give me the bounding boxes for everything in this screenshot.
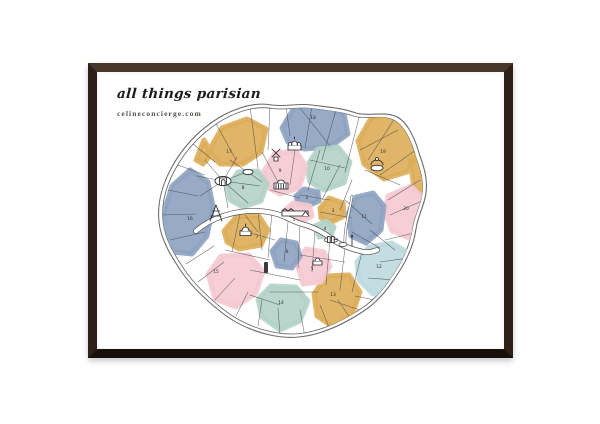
arrondissement-number: 19 [380,149,386,155]
arrondissement-number: 6 [286,249,289,255]
arrondissement-number: 9 [279,168,282,174]
arr-8-patch [227,171,267,207]
arc-de-triomphe-icon [215,176,231,185]
arrondissement-number: 8 [242,185,245,191]
picture-frame: all things parisian celineconcierge.com [88,63,513,358]
ile-saint-louis [339,243,347,247]
arrondissement-number: 17 [226,149,232,155]
montparnasse-tower-icon [264,262,268,273]
arrondissement-number: 10 [324,166,330,172]
arrondissement-number: 16 [187,216,193,222]
arrondissement-number: 12 [376,264,382,270]
product-photo: all things parisian celineconcierge.com [0,0,600,424]
arrondissement-number: 13 [330,292,336,298]
arrondissement-number: 1 [293,217,296,223]
arrondissement-number: 11 [361,214,367,220]
paris-map-illustration: 1234567891011121314151617181920 [150,95,450,347]
arrondissement-number: 15 [213,269,219,275]
cloud-icon [243,169,253,174]
arrondissement-number: 2 [306,195,309,201]
arrondissement-number: 14 [278,300,284,306]
arrondissement-number: 4 [324,226,327,232]
arrondissement-number: 5 [311,266,314,272]
arrondissement-number: 18 [310,115,316,121]
poster-paper: all things parisian celineconcierge.com [97,72,504,349]
arrondissement-number: 20 [403,206,409,212]
arrondissement-number: 7 [256,234,259,240]
arrondissement-number: 3 [332,208,335,214]
ile-de-la-cite [325,237,338,243]
